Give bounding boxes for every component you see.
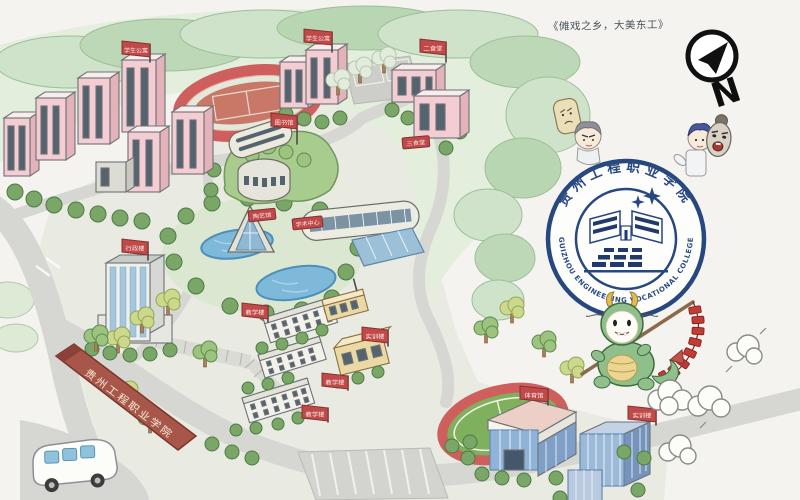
svg-text:实训楼: 实训楼 <box>366 332 386 340</box>
college-seal: 贵州工程职业学院 GUIZHOU ENGINEERING VOCATIONAL … <box>548 159 704 317</box>
svg-text:教学楼: 教学楼 <box>246 308 266 316</box>
svg-text:二食堂: 二食堂 <box>424 44 444 52</box>
svg-text:图书馆: 图书馆 <box>275 118 295 126</box>
dorm-tower <box>4 112 39 176</box>
dorm-tower <box>78 72 119 144</box>
parking-lot <box>298 448 448 500</box>
svg-text:体育馆: 体育馆 <box>525 391 545 399</box>
svg-text:教学楼: 教学楼 <box>326 378 346 386</box>
sign-pottery: 陶艺馆 <box>248 208 276 222</box>
dorm-tower <box>36 92 75 160</box>
dorm-tower <box>172 106 213 174</box>
svg-text:学生公寓: 学生公寓 <box>124 46 148 54</box>
svg-text:学生公寓: 学生公寓 <box>306 34 330 42</box>
handwritten-quote: 《傩戏之乡，大美东工》 <box>548 18 669 33</box>
sign-canteen-3: 三食堂 <box>402 136 430 149</box>
svg-text:行政楼: 行政楼 <box>126 244 146 252</box>
svg-text:教学楼: 教学楼 <box>306 410 326 418</box>
dorm-tower <box>122 54 165 132</box>
campus-map-illustration: 贵州工程职业学院 学生公寓 学生公寓 二食堂 图书馆 行政楼 <box>0 0 800 500</box>
svg-text:实训楼: 实训楼 <box>633 411 653 419</box>
utility-hut <box>96 157 134 192</box>
